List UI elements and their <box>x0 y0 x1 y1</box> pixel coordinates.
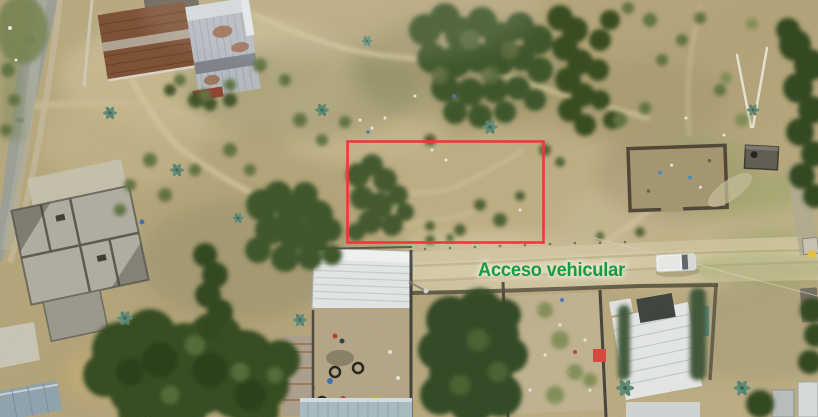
film-grain <box>0 0 818 417</box>
aerial-scene <box>0 0 818 417</box>
aerial-photo: Acceso vehicular Acceso vehicular <box>0 0 818 417</box>
